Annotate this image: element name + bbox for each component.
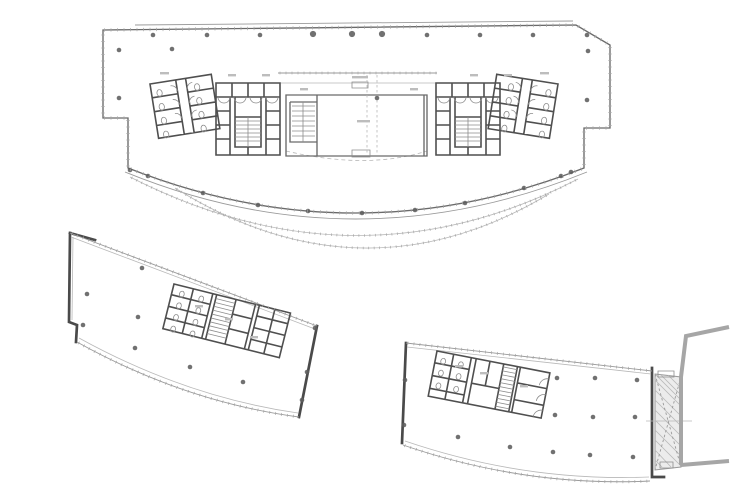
column-dot xyxy=(478,33,483,38)
column-dot xyxy=(375,96,380,101)
column-dot xyxy=(300,398,305,403)
column-dot xyxy=(349,31,355,37)
column-dot xyxy=(425,33,430,38)
column-dot xyxy=(136,315,141,320)
column-dot xyxy=(241,380,246,385)
column-dot xyxy=(379,31,385,37)
column-dot xyxy=(555,376,560,381)
column-dot xyxy=(551,450,556,455)
illegible-label xyxy=(352,76,368,78)
column-dot xyxy=(553,413,558,418)
column-dot xyxy=(402,423,407,428)
illegible-label xyxy=(300,88,308,90)
illegible-label xyxy=(160,72,169,74)
illegible-label xyxy=(470,74,478,76)
column-dot xyxy=(463,201,468,206)
column-dot xyxy=(585,33,590,38)
column-dot xyxy=(585,98,590,103)
illegible-label xyxy=(195,305,203,307)
column-dot xyxy=(635,378,640,383)
column-dot xyxy=(85,292,90,297)
illegible-label xyxy=(540,72,549,74)
column-dot xyxy=(508,445,513,450)
column-dot xyxy=(588,453,593,458)
column-dot xyxy=(631,455,636,460)
illegible-label xyxy=(520,385,528,387)
column-dot xyxy=(117,96,122,101)
column-dot xyxy=(569,170,574,175)
column-dot xyxy=(586,49,591,54)
column-dot xyxy=(591,415,596,420)
column-dot xyxy=(205,33,210,38)
column-dot xyxy=(306,209,311,214)
illegible-label xyxy=(228,74,236,76)
column-dot xyxy=(188,365,193,370)
column-dot xyxy=(413,208,418,213)
illegible-label xyxy=(250,336,258,338)
column-dot xyxy=(170,47,175,52)
column-dot xyxy=(128,168,133,173)
paper-background xyxy=(0,0,730,491)
column-dot xyxy=(133,346,138,351)
column-dot xyxy=(593,376,598,381)
column-dot xyxy=(313,326,318,331)
column-dot xyxy=(258,33,263,38)
illegible-label xyxy=(504,74,512,76)
column-dot xyxy=(256,203,261,208)
column-dot xyxy=(360,211,365,216)
column-dot xyxy=(633,415,638,420)
column-dot xyxy=(310,31,316,37)
column-dot xyxy=(117,48,122,53)
column-dot xyxy=(151,33,156,38)
floor-plan-drawing xyxy=(0,0,730,491)
column-dot xyxy=(140,266,145,271)
illegible-label xyxy=(480,372,488,374)
scanned-floor-plan-page xyxy=(0,0,730,491)
column-dot xyxy=(531,33,536,38)
column-dot xyxy=(305,370,310,375)
illegible-label xyxy=(225,318,233,320)
illegible-label xyxy=(410,88,418,90)
illegible-label xyxy=(357,120,370,122)
column-dot xyxy=(456,435,461,440)
column-dot xyxy=(403,378,408,383)
illegible-label xyxy=(262,74,270,76)
illegible-label xyxy=(455,365,463,367)
column-dot xyxy=(81,323,86,328)
